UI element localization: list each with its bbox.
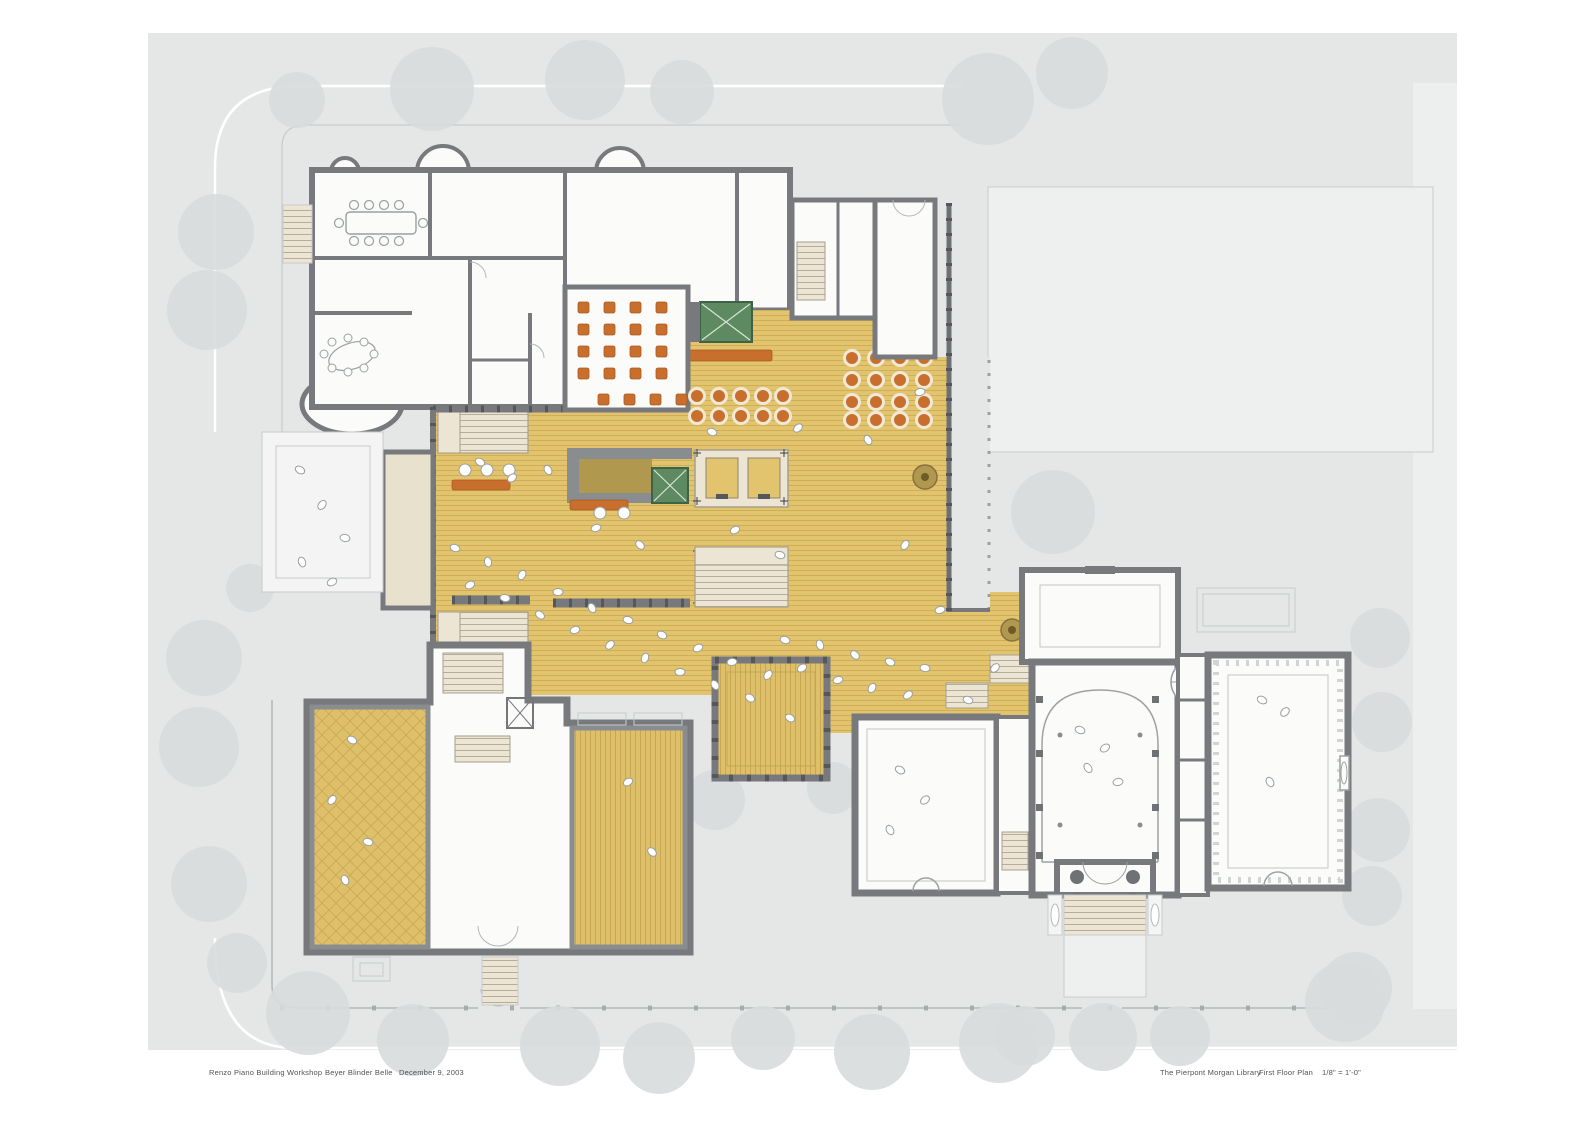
- tree-icon: [269, 72, 325, 128]
- tree-icon: [390, 47, 474, 131]
- tree-icon: [520, 1006, 600, 1086]
- layer-cube-gallery: [715, 660, 827, 778]
- oval-room-chair: [344, 334, 352, 342]
- conference-chair: [395, 237, 404, 246]
- cube-gallery-walls: [715, 660, 827, 778]
- terrace-table: [756, 389, 771, 404]
- terrace-table: [893, 395, 908, 410]
- mckim-corridor-stair: [1002, 832, 1028, 870]
- north-entry-hall: [875, 200, 935, 357]
- terrace-table: [845, 413, 860, 428]
- rotunda-floor-dot: [1138, 823, 1143, 828]
- tree-icon: [731, 1006, 795, 1070]
- bench: [452, 480, 510, 490]
- lounge-chair: [459, 464, 471, 476]
- cafe-table: [656, 324, 667, 335]
- glass-wall-garden-strip: [950, 357, 990, 610]
- architect-name: Renzo Piano Building Workshop: [209, 1068, 322, 1077]
- terrace-table: [869, 373, 884, 388]
- rotunda-column: [1036, 696, 1043, 703]
- terrace-table: [690, 409, 705, 424]
- rotunda-column: [1152, 696, 1159, 703]
- tree-icon: [159, 707, 239, 787]
- west-porch-steps: [283, 205, 312, 263]
- cafe-table: [656, 368, 667, 379]
- rotunda-floor-dot: [1138, 733, 1143, 738]
- tree-icon: [623, 1022, 695, 1094]
- tree-icon: [1036, 37, 1108, 109]
- terrace-table: [712, 409, 727, 424]
- terrace-table: [869, 395, 884, 410]
- cafe-table: [578, 324, 589, 335]
- cafe-table: [630, 324, 641, 335]
- tree-icon: [1150, 1006, 1210, 1066]
- conference-table: [346, 212, 416, 234]
- person-figure: [675, 669, 685, 676]
- lounge-chair: [594, 507, 606, 519]
- floor-plan-drawing: [0, 0, 1595, 1128]
- tree-icon: [1350, 608, 1410, 668]
- tree-icon: [650, 60, 714, 124]
- cafe-table: [630, 346, 641, 357]
- cafe-table: [604, 302, 615, 313]
- rotunda-floor-dot: [1058, 733, 1063, 738]
- floor-medallion-east-center: [1008, 626, 1016, 634]
- madison-entry-plaza: [262, 432, 383, 592]
- tree-icon: [207, 933, 267, 993]
- elevator-jamb-west: [716, 494, 728, 499]
- project-title: The Pierpont Morgan Library: [1160, 1068, 1261, 1077]
- bench-long: [690, 350, 772, 361]
- elevator-cab-west: [706, 458, 738, 498]
- cafe-table: [604, 324, 615, 335]
- lion-statue-west: [1051, 904, 1059, 926]
- terrace-table: [917, 395, 932, 410]
- terrace-table: [776, 409, 791, 424]
- rotunda-floor-dot: [1058, 823, 1063, 828]
- garden-room-niche: [1085, 566, 1115, 574]
- oval-room-chair: [320, 350, 328, 358]
- rotunda-column: [1036, 852, 1043, 859]
- cafe-table: [604, 346, 615, 357]
- drawing-scale: 1/8" = 1'-0": [1322, 1068, 1361, 1077]
- vestibule-stair: [797, 242, 825, 300]
- west-gallery-floor: [312, 707, 428, 947]
- reception-desk-counter: [579, 459, 652, 493]
- cafe-table: [650, 394, 661, 405]
- associate-architect-name: Beyer Blinder Belle: [325, 1068, 393, 1077]
- terrace-table: [776, 389, 791, 404]
- conference-chair: [380, 237, 389, 246]
- terrace-table: [917, 413, 932, 428]
- cafe-wall-recess: [688, 302, 700, 342]
- tree-icon: [1352, 692, 1412, 752]
- conference-chair: [419, 219, 428, 228]
- terrace-table: [917, 373, 932, 388]
- cafe-table: [656, 302, 667, 313]
- person-figure: [553, 589, 563, 596]
- mckim-west-room: [855, 717, 997, 893]
- conference-chair: [335, 219, 344, 228]
- cafe-table: [578, 346, 589, 357]
- terrace-table: [756, 409, 771, 424]
- elevator-cab-east: [748, 458, 780, 498]
- tree-icon: [1346, 798, 1410, 862]
- tree-icon: [834, 1014, 910, 1090]
- drawing-date: December 9, 2003: [399, 1068, 464, 1077]
- portico-steps: [1064, 895, 1146, 935]
- portico-column: [1126, 870, 1140, 884]
- grand-stair-landing: [695, 547, 788, 565]
- conference-chair: [380, 201, 389, 210]
- cafe-table: [624, 394, 635, 405]
- cafe-table: [676, 394, 687, 405]
- oval-room-chair: [344, 368, 352, 376]
- lounge-chair: [618, 507, 630, 519]
- mckim-east-room: [1208, 655, 1348, 888]
- rotunda-column: [1152, 750, 1159, 757]
- tree-icon: [995, 1006, 1055, 1066]
- tree-icon: [942, 53, 1034, 145]
- tree-icon: [167, 270, 247, 350]
- tree-icon: [545, 40, 625, 120]
- rotunda-column: [1036, 804, 1043, 811]
- cafe-table: [630, 368, 641, 379]
- oval-room-chair: [328, 364, 336, 372]
- terrace-table: [712, 389, 727, 404]
- portico-lower-landing: [1064, 935, 1146, 997]
- terrace-table: [893, 413, 908, 428]
- wing-entry-steps: [482, 957, 518, 1005]
- rotunda-column: [1036, 750, 1043, 757]
- tree-icon: [1011, 470, 1095, 554]
- conference-chair: [395, 201, 404, 210]
- cafe-table: [578, 302, 589, 313]
- wing-stair-lower: [455, 736, 510, 762]
- tree-icon: [171, 846, 247, 922]
- cafe-table: [656, 346, 667, 357]
- terrace-table: [845, 351, 860, 366]
- grand-stair-treads: [695, 565, 788, 607]
- conference-chair: [365, 237, 374, 246]
- reception-desk-top: [567, 448, 692, 459]
- cafe-table: [604, 368, 615, 379]
- terrace-table: [845, 395, 860, 410]
- tree-icon: [166, 620, 242, 696]
- terrace-table: [869, 413, 884, 428]
- cafe-table: [578, 368, 589, 379]
- east-gallery-floor: [572, 728, 685, 947]
- cafe-table: [598, 394, 609, 405]
- neighbor-building: [988, 187, 1433, 452]
- terrace-table: [690, 389, 705, 404]
- drawing-title: First Floor Plan: [1259, 1068, 1313, 1077]
- oval-room-chair: [360, 364, 368, 372]
- tree-icon: [1069, 1003, 1137, 1071]
- elevator-jamb-east: [758, 494, 770, 499]
- lion-statue-east: [1151, 904, 1159, 926]
- garden-room: [1022, 570, 1178, 662]
- northeast-steps-lower: [946, 683, 988, 708]
- floor-medallion-west-center: [921, 473, 929, 481]
- conference-chair: [350, 201, 359, 210]
- tree-icon: [1320, 952, 1392, 1024]
- tree-icon: [178, 194, 254, 270]
- conference-chair: [350, 237, 359, 246]
- rotunda-column: [1152, 804, 1159, 811]
- terrace-table: [845, 373, 860, 388]
- north-stair-landing: [438, 408, 460, 453]
- wing-stair: [443, 653, 503, 693]
- floor-plan-page: Renzo Piano Building Workshop Beyer Blin…: [0, 0, 1595, 1128]
- oval-room-chair: [360, 338, 368, 346]
- terrace-table: [734, 389, 749, 404]
- oval-room-chair: [370, 350, 378, 358]
- rotunda-column: [1152, 852, 1159, 859]
- portico-column: [1070, 870, 1084, 884]
- oval-room-chair: [328, 338, 336, 346]
- tree-icon: [266, 971, 350, 1055]
- terrace-table: [893, 373, 908, 388]
- madison-vestibule: [383, 452, 433, 608]
- cafe-table: [630, 302, 641, 313]
- conference-chair: [365, 201, 374, 210]
- mckim-east-connector: [1178, 655, 1208, 895]
- tree-icon: [377, 1004, 449, 1076]
- terrace-table: [734, 409, 749, 424]
